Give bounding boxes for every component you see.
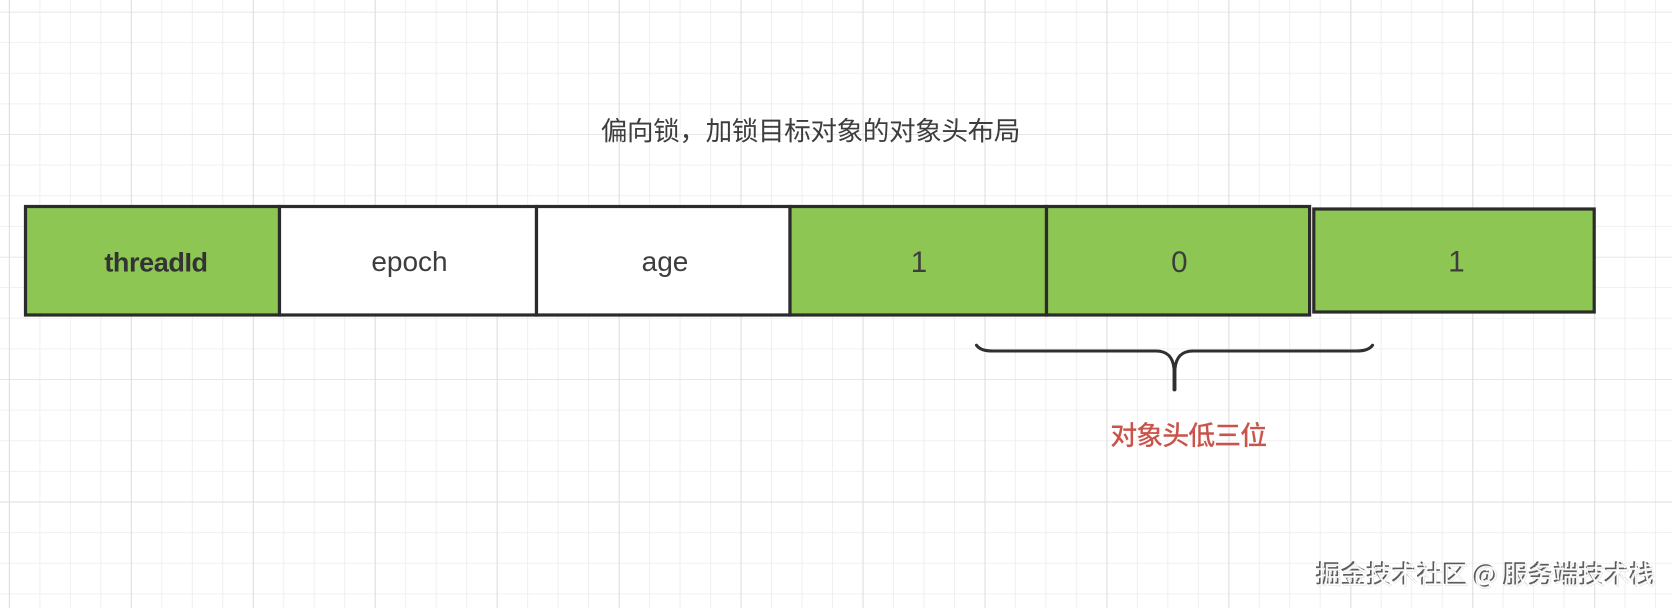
svg-text:age: age <box>642 246 689 277</box>
svg-text:epoch: epoch <box>371 246 447 277</box>
svg-text:0: 0 <box>1171 246 1187 279</box>
svg-text:1: 1 <box>911 246 927 279</box>
svg-text:1: 1 <box>1448 246 1464 279</box>
svg-text:threadId: threadId <box>104 248 207 278</box>
